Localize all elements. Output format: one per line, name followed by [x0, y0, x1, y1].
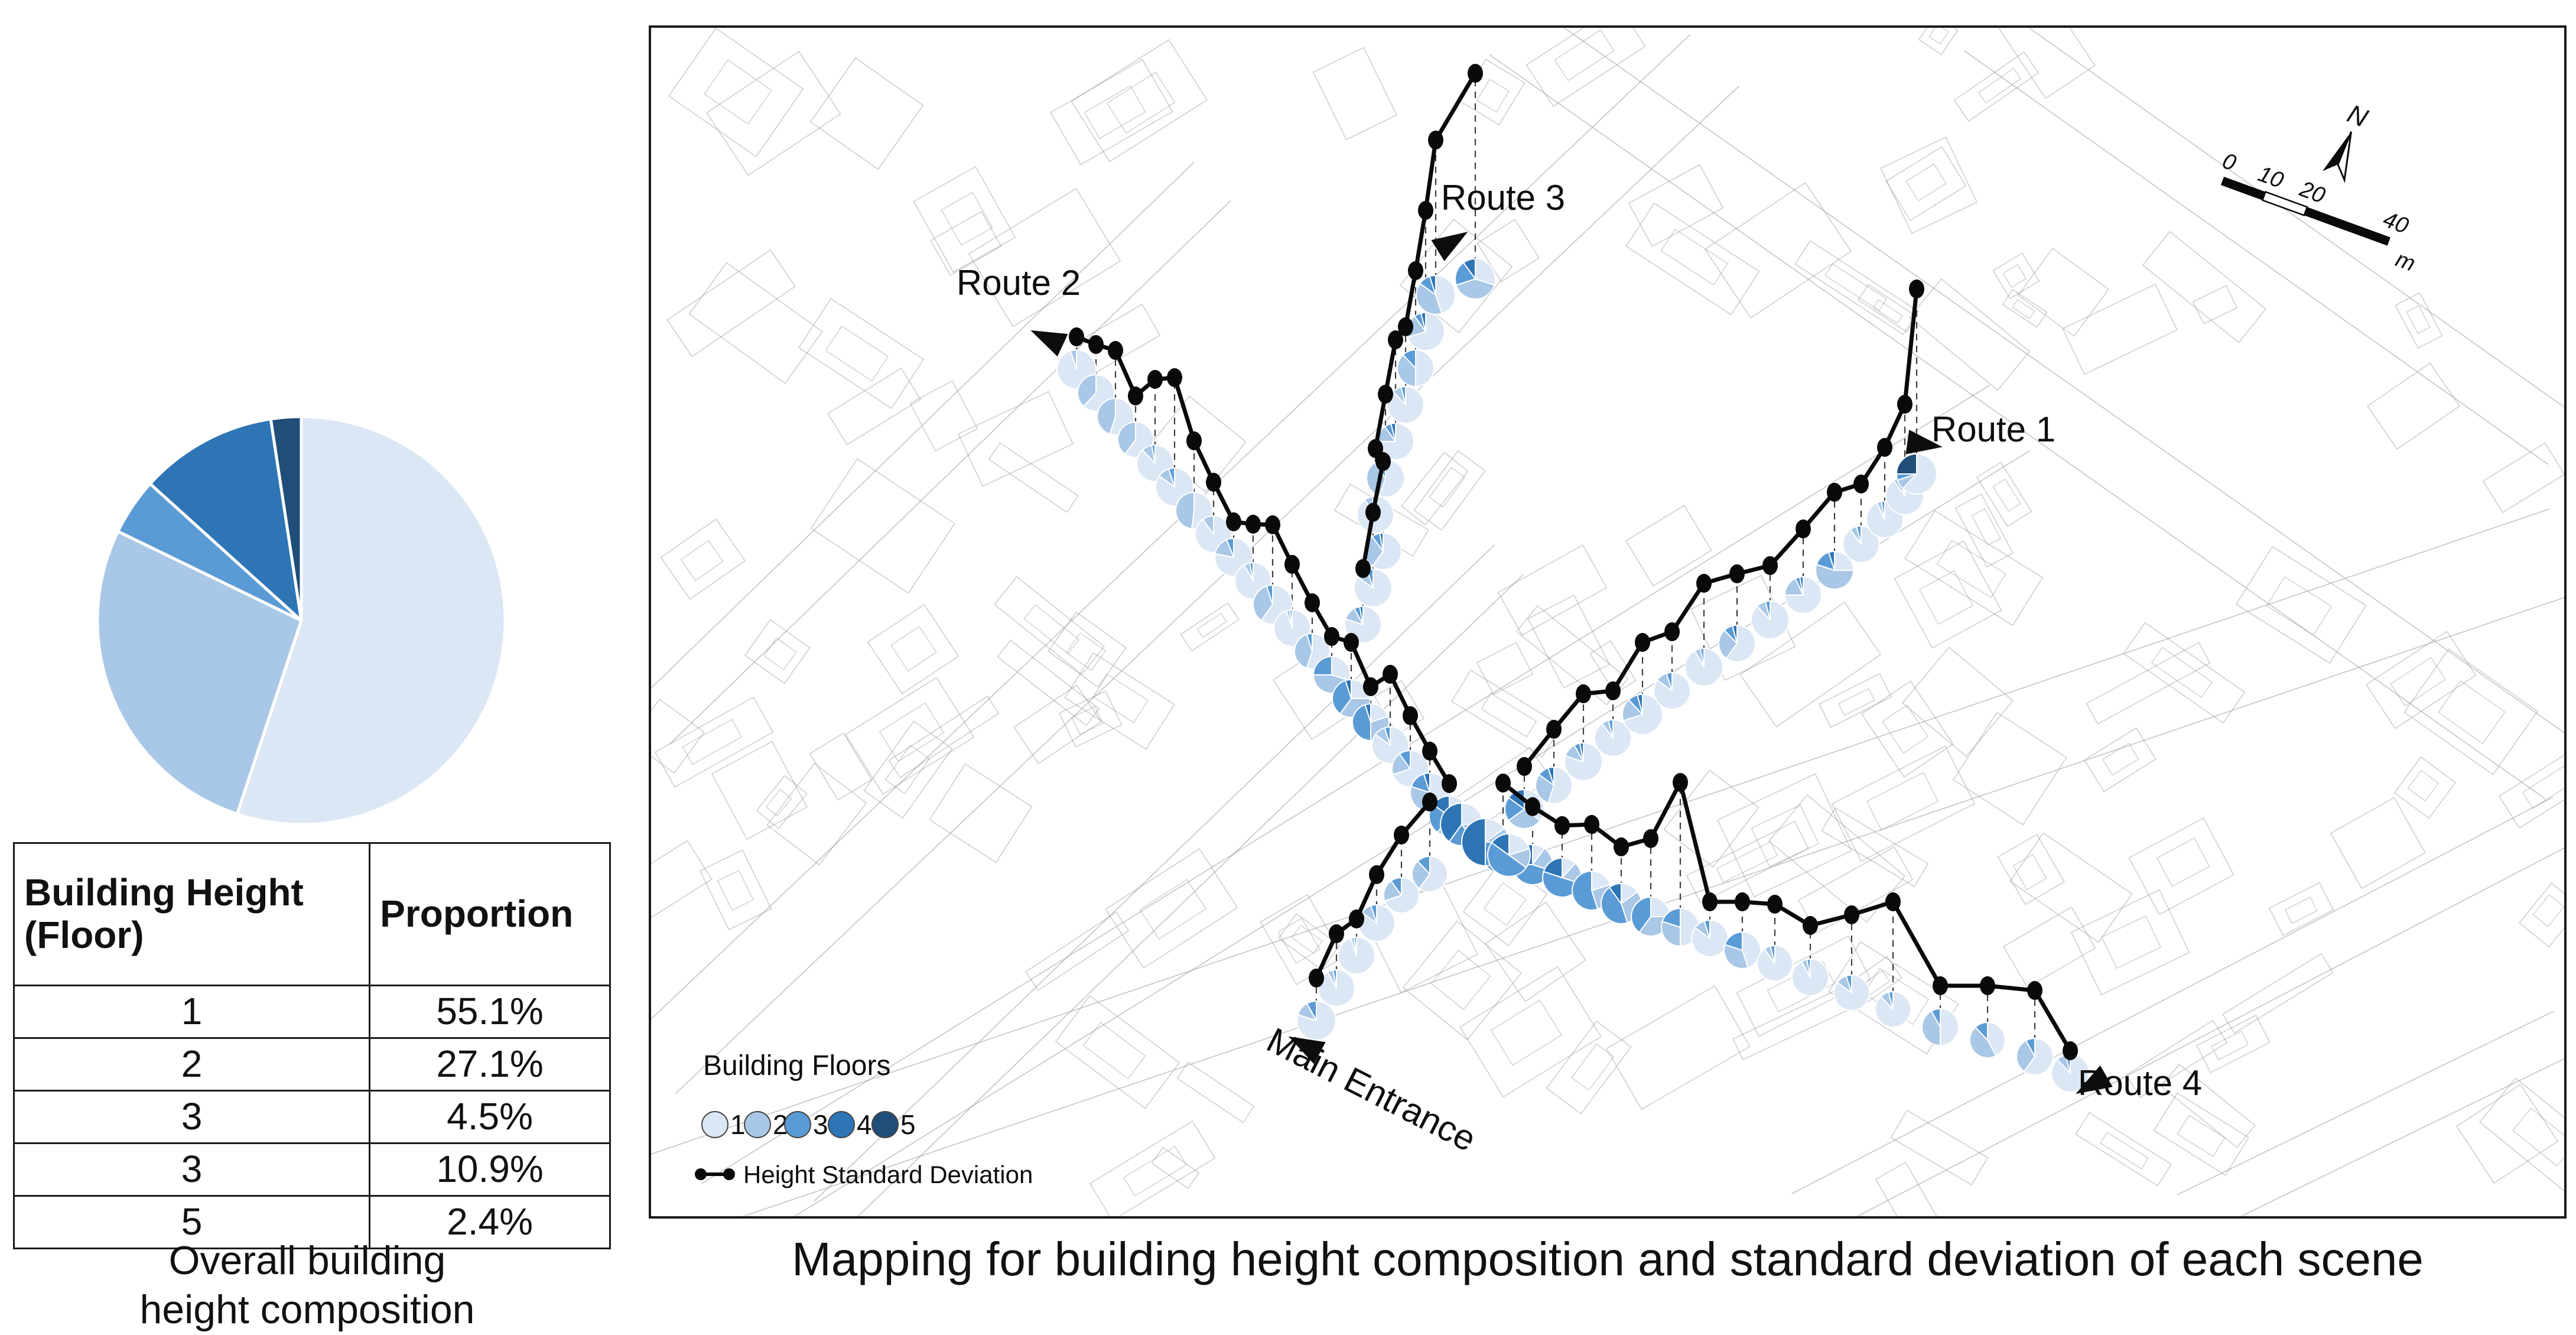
sd-point	[1546, 720, 1562, 739]
scale-tick-label: 10	[2255, 161, 2286, 193]
building-outline	[910, 381, 977, 451]
sd-point	[1767, 895, 1783, 914]
building-outline	[2519, 883, 2564, 947]
sd-point	[1643, 829, 1658, 848]
sd-point	[1305, 593, 1320, 612]
legend-floor-label-4: 4	[857, 1109, 872, 1140]
scene-pie	[1455, 259, 1495, 299]
sd-point	[1422, 792, 1437, 811]
scene-pie	[1685, 648, 1723, 686]
sd-point	[1827, 483, 1842, 502]
scene-pie	[1970, 1022, 2005, 1058]
table-row: 227.1%	[14, 1038, 610, 1091]
building-outline	[1048, 612, 1126, 687]
building-outline	[2367, 363, 2460, 449]
sd-point	[1584, 815, 1599, 834]
sd-point	[1394, 826, 1409, 844]
sd-point	[1664, 622, 1680, 641]
sd-point	[1383, 665, 1398, 684]
building-outline	[1313, 47, 1397, 139]
building-outline	[1090, 1121, 1215, 1216]
north-arrow: N	[2323, 98, 2374, 180]
sd-point	[1673, 773, 1688, 792]
sd-point	[1877, 438, 1892, 457]
sd-point	[1796, 519, 1811, 538]
table-row: 155.1%	[14, 986, 610, 1038]
building-outline	[651, 841, 712, 918]
scene-pie	[1416, 275, 1455, 314]
legend-floor-swatch-2	[744, 1112, 770, 1138]
scene-pie	[1834, 975, 1869, 1011]
building-outline	[1881, 137, 1977, 233]
road-line	[1791, 797, 2552, 1194]
building-outline	[1902, 647, 2013, 756]
left-caption: Overall building height composition	[35, 1236, 579, 1334]
scene-pie	[1654, 673, 1690, 709]
building-outline	[913, 167, 1015, 272]
legend-floor-label-5: 5	[900, 1109, 916, 1140]
building-outline	[1452, 670, 1562, 757]
scene-pie	[1757, 946, 1793, 981]
sd-point	[1349, 910, 1364, 928]
building-outline	[2076, 1113, 2171, 1186]
building-outline	[828, 368, 921, 444]
table-cell: 4.5%	[370, 1091, 610, 1144]
building-outline	[2483, 443, 2564, 513]
scale-tick-label: 0	[2219, 148, 2239, 176]
route-pies	[1057, 259, 2089, 1092]
scene-pie	[1724, 932, 1761, 969]
sd-point	[1398, 317, 1413, 336]
left-caption-line1: Overall building	[35, 1236, 579, 1285]
map-annotations: Route 2Route 3Route 1Route 4Main Entranc…	[695, 98, 2429, 1188]
table-cell: 55.1%	[370, 986, 610, 1038]
overall-pie-chart	[77, 393, 526, 842]
route-label-route-1: Route 1	[1931, 410, 2055, 449]
sd-point	[1355, 559, 1371, 578]
sd-point	[1980, 976, 1995, 995]
pie-slice	[1416, 350, 1434, 386]
sd-point	[1442, 774, 1457, 793]
building-outline	[2236, 547, 2366, 663]
building-outline	[1919, 28, 1958, 54]
sd-point	[1369, 865, 1384, 884]
sd-point	[1735, 892, 1750, 911]
building-outline	[1105, 849, 1237, 968]
map-caption: Mapping for building height composition …	[649, 1232, 2567, 1287]
sd-point	[1344, 633, 1359, 652]
route-main-entrance: Main Entrance	[1261, 1020, 1482, 1159]
building-outline	[969, 189, 1121, 326]
building-outline	[1954, 52, 2038, 121]
sd-point	[1696, 574, 1712, 593]
map-panel: Route 2Route 3Route 1Route 4Main Entranc…	[649, 25, 2567, 1219]
building-outline	[700, 850, 772, 930]
building-outline	[868, 605, 958, 694]
route-route-2: Route 2	[957, 263, 1081, 356]
building-outline	[994, 577, 1104, 674]
road-line	[1527, 28, 2564, 746]
building-outline	[2010, 833, 2132, 942]
building-outline	[2395, 757, 2455, 818]
building-outline	[2331, 798, 2425, 889]
sd-point	[1324, 627, 1339, 646]
building-outline	[2480, 1078, 2564, 1194]
sd-point	[1186, 431, 1202, 450]
building-outline	[1059, 691, 1121, 747]
building-outline	[2395, 293, 2442, 348]
sd-point	[1844, 905, 1859, 924]
scene-pie	[1358, 905, 1395, 941]
col-header-proportion: Proportion	[370, 843, 610, 986]
sd-point	[1206, 473, 1221, 492]
sd-point	[1408, 261, 1423, 280]
sd-point	[1605, 681, 1621, 700]
building-outline	[811, 58, 923, 169]
table-header-row: Building Height (Floor) Proportion	[14, 843, 610, 986]
legend-floor-swatch-4	[828, 1112, 854, 1138]
table-cell: 3	[14, 1144, 370, 1196]
sd-point	[1147, 370, 1163, 389]
scene-pie	[1792, 959, 1829, 996]
building-outline	[669, 28, 803, 157]
sd-point	[1576, 684, 1591, 703]
building-outline	[745, 620, 810, 684]
route-label-route-3: Route 3	[1441, 178, 1565, 217]
building-outline	[2071, 890, 2190, 995]
sd-point	[2027, 981, 2042, 1000]
building-outline	[958, 392, 1073, 486]
building-outline	[889, 696, 999, 777]
legend-title: Building Floors	[703, 1050, 890, 1081]
building-outline	[2143, 232, 2266, 343]
building-outline	[2499, 745, 2564, 829]
sd-point	[1378, 385, 1393, 404]
sd-point	[1495, 774, 1511, 792]
road-line	[2198, 1054, 2564, 1216]
building-outline	[1014, 685, 1101, 764]
building-outline	[998, 640, 1100, 725]
pie-svg	[77, 393, 526, 842]
scene-pie	[1412, 856, 1448, 892]
building-outline	[1279, 914, 1339, 970]
road-line	[2177, 1011, 2554, 1195]
pie-slice	[1897, 454, 1917, 474]
map-legend: Building Floors12345Height Standard Devi…	[695, 1050, 1033, 1188]
building-outline	[1606, 986, 1750, 1109]
table-cell: 2	[14, 1038, 370, 1091]
building-outline	[1403, 921, 1521, 1040]
scene-pie	[1692, 920, 1728, 957]
sd-point	[1468, 64, 1483, 83]
sd-point	[1933, 976, 1948, 995]
sd-point	[1762, 556, 1778, 575]
sd-point	[1909, 280, 1924, 298]
scene-pie	[1897, 454, 1937, 494]
building-outline	[1626, 505, 1712, 586]
route-label-route-2: Route 2	[957, 263, 1081, 303]
building-outline	[2123, 623, 2245, 723]
legend-floor-label-1: 1	[730, 1109, 746, 1140]
sd-point	[1635, 633, 1650, 652]
building-outline	[2129, 818, 2233, 914]
sd-point	[1069, 327, 1084, 346]
building-outline	[2084, 728, 2156, 792]
scale-tick-label: 20	[2296, 177, 2328, 209]
legend-floor-label-3: 3	[813, 1109, 828, 1140]
scale-tick-label: 40	[2380, 207, 2412, 239]
building-outline	[1886, 147, 1966, 220]
building-outline	[1401, 452, 1468, 525]
building-outline	[1998, 834, 2064, 904]
col-header-building-height: Building Height (Floor)	[14, 843, 370, 986]
legend-floor-swatch-1	[702, 1112, 728, 1138]
scene-pie	[2016, 1038, 2053, 1075]
building-outline	[707, 51, 840, 176]
building-outline	[1832, 746, 1975, 862]
scene-pie	[1875, 992, 1911, 1027]
building-outline	[1626, 203, 1759, 315]
scene-pie	[1397, 350, 1434, 386]
building-outline	[655, 697, 773, 787]
scene-pie	[1565, 743, 1602, 781]
pie-slice	[1940, 1009, 1959, 1045]
building-height-table: Building Height (Floor) Proportion 155.1…	[13, 842, 611, 1249]
route-route-4: Route 4	[2070, 1063, 2202, 1105]
scene-pie	[1719, 625, 1755, 662]
building-outline	[1414, 451, 1485, 530]
building-outline	[811, 459, 955, 593]
sd-point	[1853, 475, 1869, 493]
building-outline	[2003, 907, 2095, 988]
sd-point	[2063, 1041, 2078, 1060]
building-outline	[1977, 462, 2031, 526]
building-outline	[1953, 712, 2067, 824]
sd-point	[1088, 335, 1104, 354]
sd-point	[1245, 515, 1261, 534]
sd-point	[1525, 797, 1540, 816]
sd-point	[1309, 969, 1324, 988]
building-outline	[2063, 284, 2177, 374]
table-cell: 1	[14, 986, 370, 1038]
building-outline	[845, 678, 974, 794]
building-outline	[689, 262, 822, 383]
sd-point	[1418, 201, 1433, 220]
legend-floor-swatch-5	[872, 1112, 898, 1138]
sd-point	[1729, 564, 1745, 583]
table-cell: 27.1%	[370, 1038, 610, 1091]
building-outline	[2003, 290, 2047, 327]
scene-pie	[1536, 767, 1572, 804]
road-line	[1964, 51, 2548, 465]
crossing-pie	[1488, 834, 1530, 876]
road-line	[675, 86, 1739, 1094]
sd-point	[1803, 916, 1818, 935]
building-outline	[2193, 285, 2237, 323]
road-line	[651, 509, 2550, 1159]
table-cell: 10.9%	[370, 1144, 610, 1196]
scene-pie	[1407, 313, 1445, 350]
road-line	[1996, 28, 2564, 418]
scale-unit-label: m	[2392, 247, 2418, 277]
sd-point	[1128, 386, 1143, 405]
sd-point	[1403, 706, 1418, 725]
scene-pie	[1922, 1009, 1959, 1045]
scene-pie	[1751, 601, 1789, 639]
sd-point	[1422, 742, 1437, 761]
building-outline	[989, 443, 1078, 512]
north-label: N	[2343, 99, 2372, 133]
sd-point	[1885, 892, 1901, 911]
sd-point	[1554, 816, 1570, 835]
building-outline	[712, 742, 807, 839]
sd-point	[1368, 439, 1383, 458]
legend-sd-dot-icon	[695, 1168, 707, 1180]
sd-point	[1614, 837, 1629, 856]
sd-point	[1265, 515, 1280, 534]
sd-point	[1226, 512, 1241, 531]
building-outline	[2223, 954, 2333, 1033]
building-outline	[799, 298, 923, 408]
building-outline	[1056, 996, 1179, 1108]
scene-pie	[1785, 577, 1822, 613]
legend-sd-label: Height Standard Deviation	[743, 1161, 1033, 1188]
sd-point	[1897, 395, 1913, 414]
sd-point	[1428, 131, 1443, 150]
route-route-1: Route 1	[1905, 410, 2055, 459]
sd-point	[1363, 677, 1378, 696]
sd-point	[1108, 341, 1123, 360]
route-route-3: Route 3	[1431, 178, 1565, 261]
building-outline	[1177, 1062, 1254, 1122]
building-outline	[1477, 642, 1533, 694]
left-caption-line2: height composition	[35, 1285, 579, 1334]
table-row: 310.9%	[14, 1144, 610, 1196]
route-arrow-route-2	[1025, 319, 1068, 356]
building-outline	[1905, 511, 2042, 625]
building-outline	[1910, 279, 2029, 390]
building-outline	[1460, 967, 1601, 1097]
legend-sd-dot-icon	[723, 1168, 735, 1180]
building-outline	[1050, 60, 1172, 165]
table-cell: 3	[14, 1091, 370, 1144]
building-outline	[929, 764, 1032, 863]
table-body: 155.1%227.1%34.5%310.9%52.4%	[14, 986, 610, 1249]
scale-seg-black	[2304, 207, 2390, 245]
building-outline	[661, 519, 745, 599]
building-outline	[2269, 883, 2333, 936]
overall-pie	[97, 417, 505, 824]
building-outline	[1819, 674, 1891, 727]
building-outline	[1498, 545, 1606, 635]
legend-floor-swatch-3	[785, 1112, 811, 1138]
route-arrow-route-3	[1431, 221, 1474, 261]
sd-point	[1702, 892, 1718, 911]
figure-canvas: { "left_panel": { "table": { "headers": …	[0, 0, 2576, 1335]
building-outline	[1862, 681, 1953, 777]
building-outline	[1547, 1021, 1631, 1114]
map-svg: Route 2Route 3Route 1Route 4Main Entranc…	[651, 28, 2564, 1216]
building-outline	[1180, 603, 1238, 651]
table-head: Building Height (Floor) Proportion	[14, 843, 610, 986]
sd-point	[1329, 924, 1344, 943]
sd-point	[1284, 555, 1300, 574]
sd-point	[1517, 757, 1532, 776]
table-row: 34.5%	[14, 1091, 610, 1144]
building-outline	[1999, 28, 2095, 99]
scale-bar: 0102040m	[2208, 148, 2430, 277]
scene-pie	[1338, 937, 1375, 974]
building-outline	[2018, 248, 2109, 336]
sd-point	[1167, 368, 1182, 387]
sd-point	[1365, 503, 1381, 522]
